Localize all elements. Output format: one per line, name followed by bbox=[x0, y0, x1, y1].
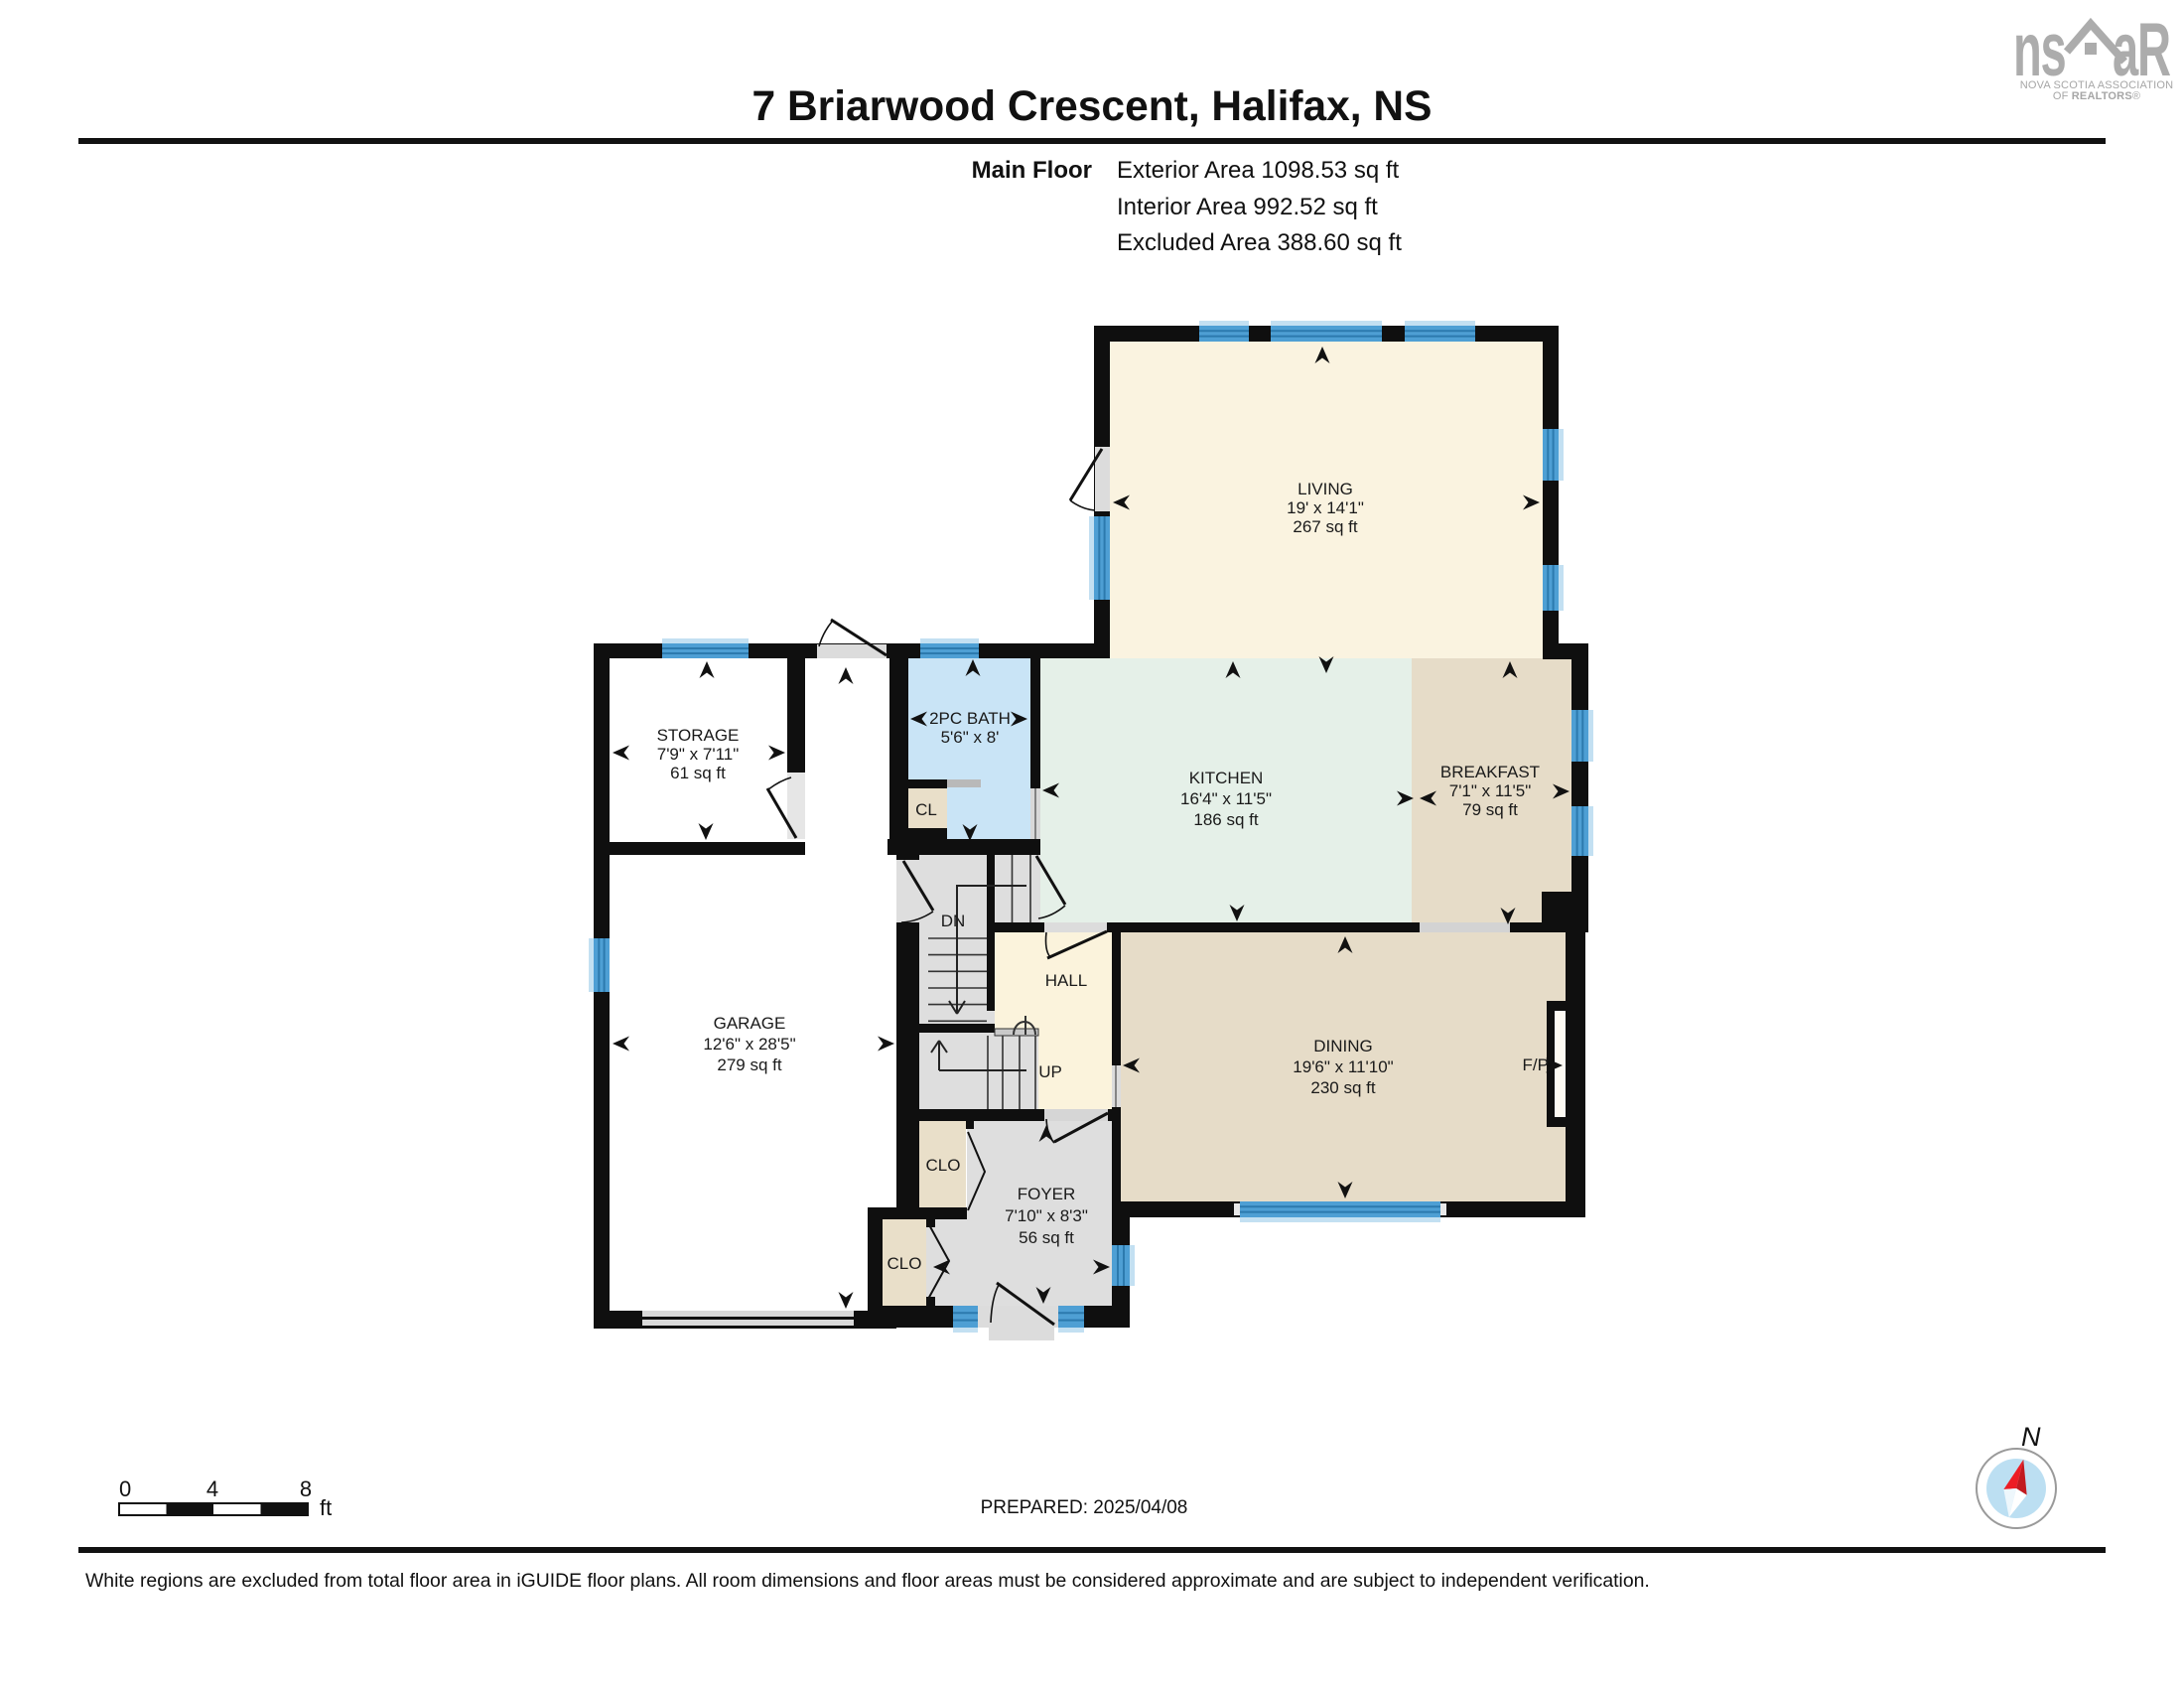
svg-text:STORAGE: STORAGE bbox=[657, 726, 740, 745]
svg-text:7 Briarwood Crescent, Halifax,: 7 Briarwood Crescent, Halifax, NS bbox=[752, 83, 1433, 130]
svg-text:7'9" x 7'11": 7'9" x 7'11" bbox=[657, 745, 740, 764]
svg-text:DN: DN bbox=[941, 912, 966, 930]
svg-text:56 sq ft: 56 sq ft bbox=[1019, 1228, 1074, 1247]
svg-text:16'4" x 11'5": 16'4" x 11'5" bbox=[1180, 789, 1272, 808]
svg-text:White regions are excluded fro: White regions are excluded from total fl… bbox=[85, 1570, 1650, 1592]
svg-text:0: 0 bbox=[119, 1477, 131, 1501]
svg-text:LIVING: LIVING bbox=[1297, 480, 1353, 498]
svg-text:HALL: HALL bbox=[1045, 971, 1088, 990]
svg-text:FOYER: FOYER bbox=[1018, 1185, 1076, 1203]
svg-text:4: 4 bbox=[206, 1477, 218, 1501]
svg-text:DINING: DINING bbox=[1313, 1037, 1373, 1055]
svg-text:PREPARED: 2025/04/08: PREPARED: 2025/04/08 bbox=[981, 1497, 1188, 1518]
svg-text:N: N bbox=[2021, 1422, 2041, 1452]
svg-text:OF REALTORS®: OF REALTORS® bbox=[2053, 90, 2140, 102]
svg-text:7'1" x 11'5": 7'1" x 11'5" bbox=[1449, 781, 1532, 800]
svg-text:61 sq ft: 61 sq ft bbox=[670, 764, 726, 782]
svg-text:CLO: CLO bbox=[887, 1254, 922, 1273]
svg-text:230 sq ft: 230 sq ft bbox=[1310, 1078, 1375, 1097]
svg-text:8: 8 bbox=[300, 1477, 312, 1501]
svg-text:19' x 14'1": 19' x 14'1" bbox=[1287, 498, 1364, 517]
svg-text:Exterior Area 1098.53 sq ft: Exterior Area 1098.53 sq ft bbox=[1117, 157, 1400, 184]
svg-text:2PC BATH: 2PC BATH bbox=[929, 709, 1011, 728]
svg-text:GARAGE: GARAGE bbox=[714, 1014, 786, 1033]
svg-text:F/P: F/P bbox=[1523, 1055, 1549, 1074]
svg-text:Interior Area 992.52 sq ft: Interior Area 992.52 sq ft bbox=[1117, 194, 1378, 220]
svg-text:7'10" x 8'3": 7'10" x 8'3" bbox=[1005, 1206, 1088, 1225]
svg-text:CL: CL bbox=[915, 800, 937, 819]
svg-text:BREAKFAST: BREAKFAST bbox=[1440, 763, 1540, 781]
svg-text:79 sq ft: 79 sq ft bbox=[1462, 800, 1518, 819]
svg-text:Main Floor: Main Floor bbox=[972, 157, 1092, 184]
svg-text:5'6" x 8': 5'6" x 8' bbox=[941, 728, 1000, 747]
svg-text:Excluded Area 388.60 sq ft: Excluded Area 388.60 sq ft bbox=[1117, 229, 1402, 256]
svg-text:ft: ft bbox=[320, 1495, 332, 1520]
svg-text:12'6" x 28'5": 12'6" x 28'5" bbox=[703, 1035, 795, 1054]
svg-text:186 sq ft: 186 sq ft bbox=[1193, 810, 1258, 829]
svg-text:CLO: CLO bbox=[926, 1156, 961, 1175]
svg-text:19'6" x 11'10": 19'6" x 11'10" bbox=[1293, 1057, 1393, 1076]
svg-text:KITCHEN: KITCHEN bbox=[1189, 769, 1264, 787]
svg-text:267 sq ft: 267 sq ft bbox=[1293, 517, 1357, 536]
svg-text:279 sq ft: 279 sq ft bbox=[717, 1055, 781, 1074]
svg-text:UP: UP bbox=[1038, 1062, 1062, 1081]
